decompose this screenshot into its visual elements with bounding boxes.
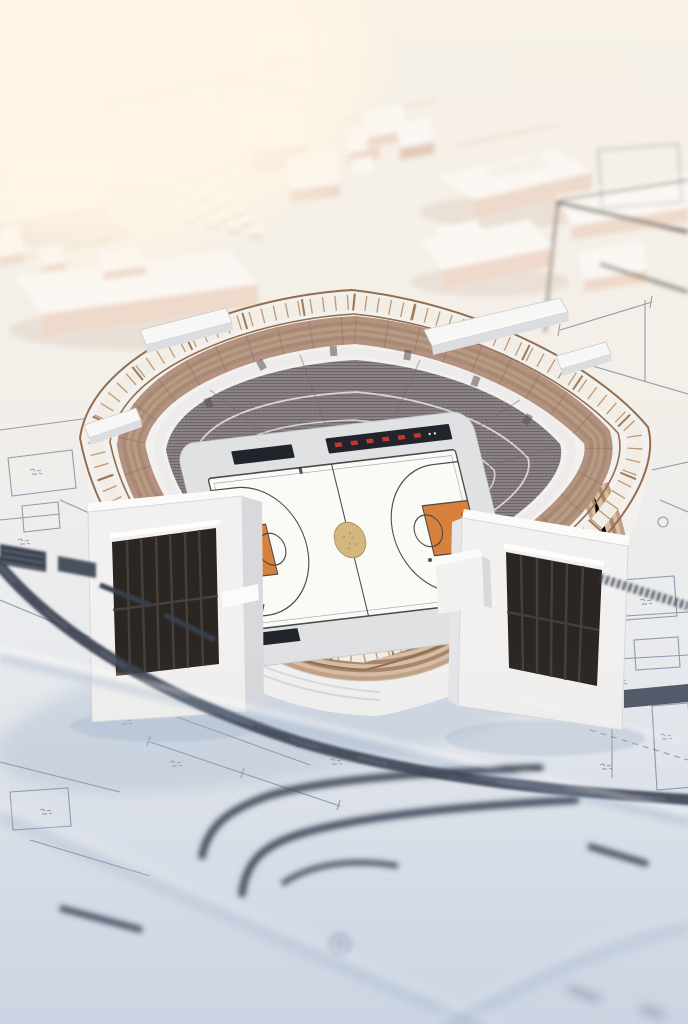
stadium-model-render	[0, 0, 688, 1024]
ticket-booth	[434, 548, 492, 614]
cool-wash	[0, 640, 688, 1024]
render-scene	[0, 0, 688, 1024]
